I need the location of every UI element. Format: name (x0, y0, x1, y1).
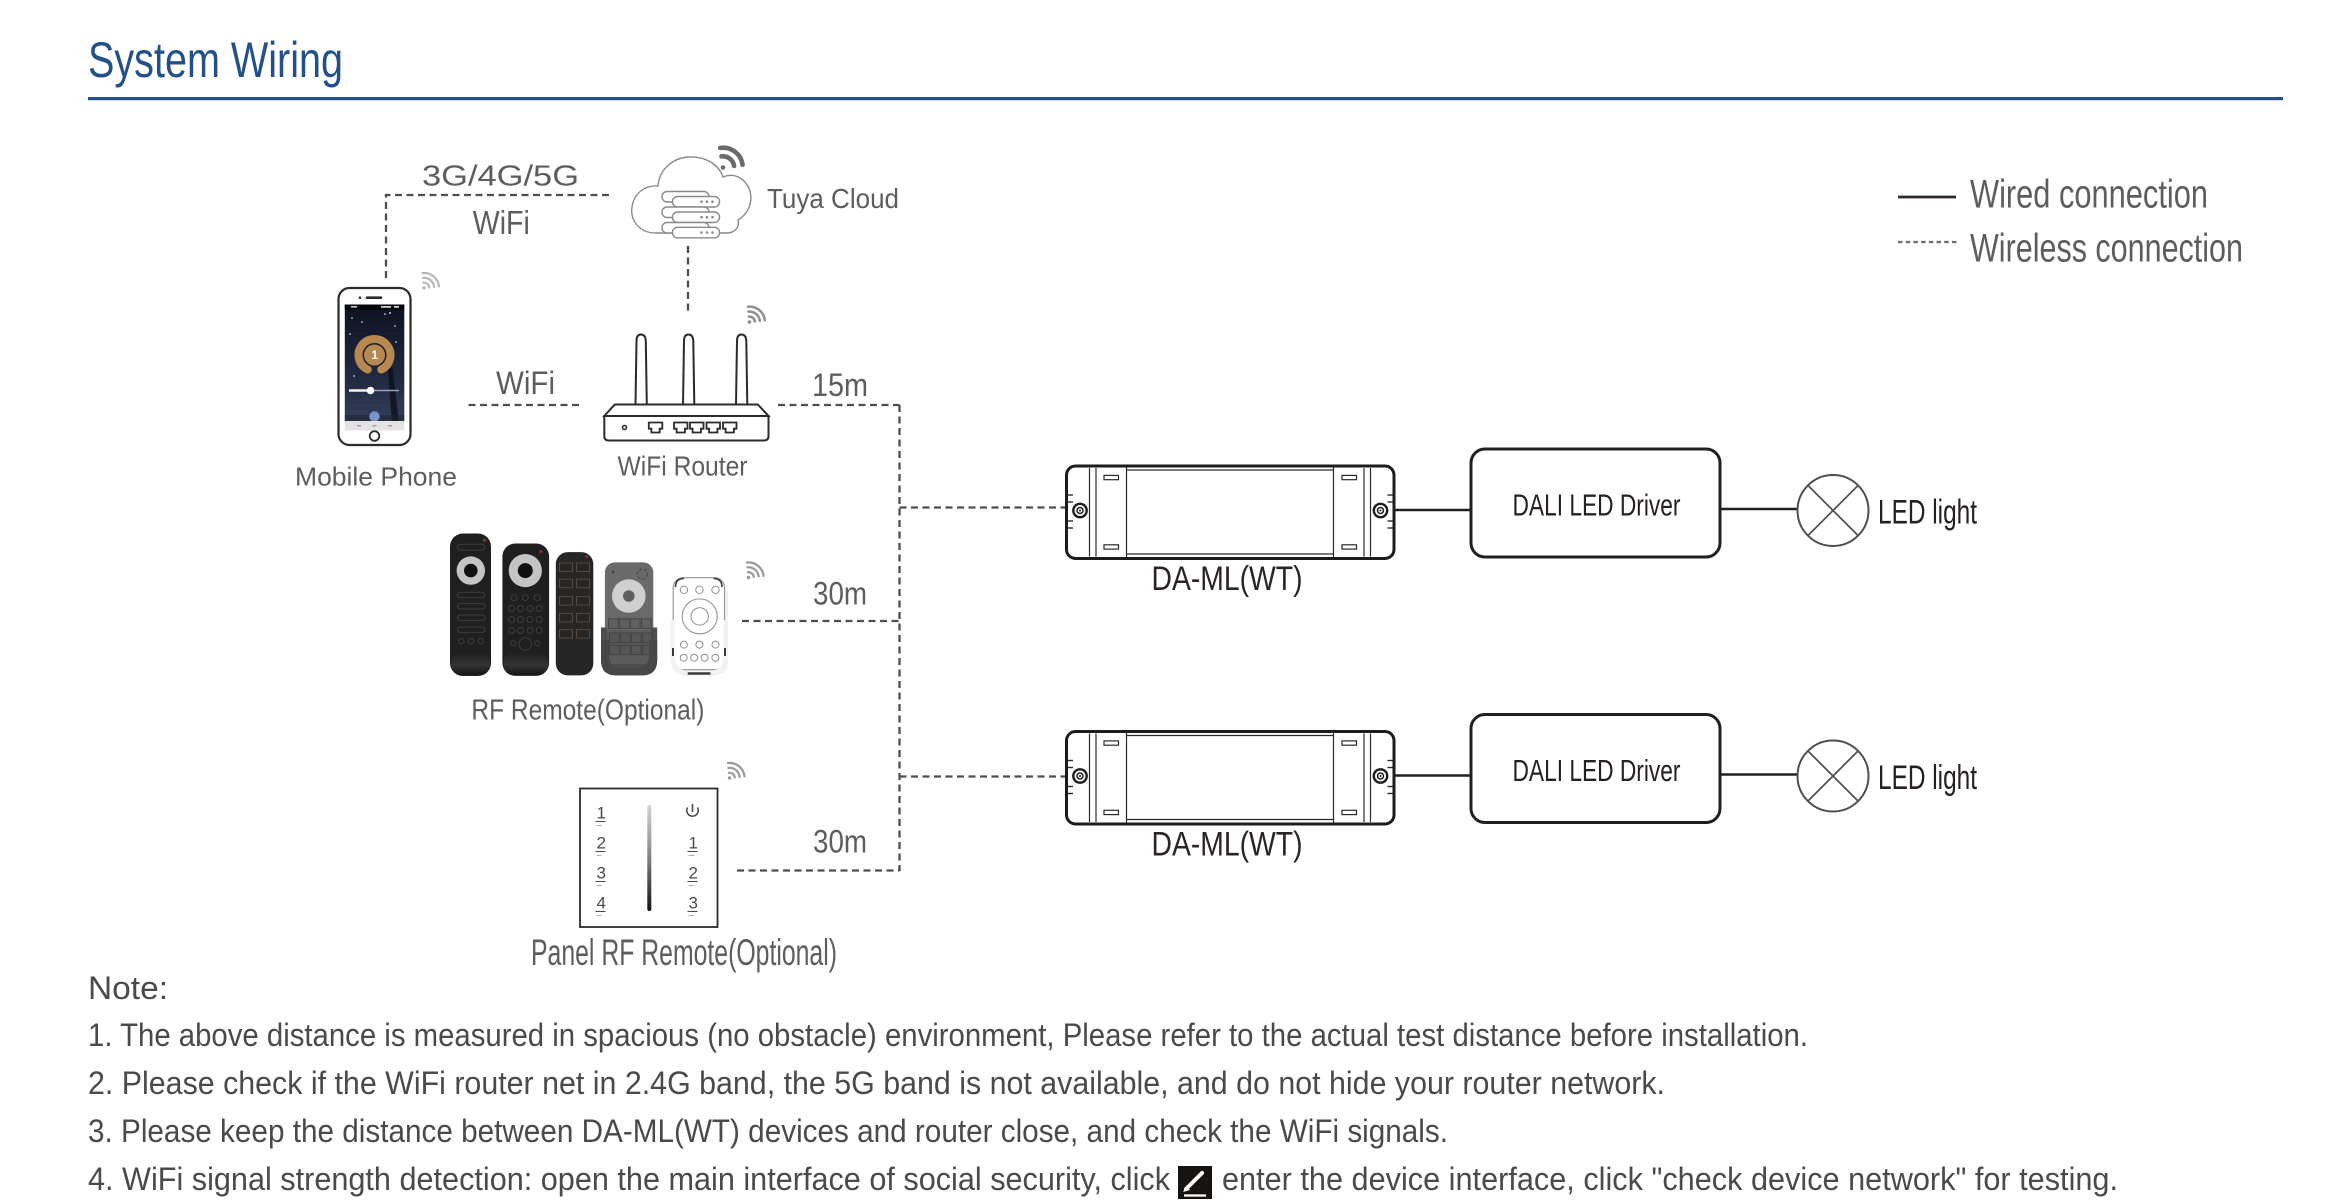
svg-text:30m: 30m (813, 576, 867, 612)
svg-text:1. The above distance is measu: 1. The above distance is measured in spa… (88, 1017, 1808, 1053)
svg-text:Mobile Phone: Mobile Phone (295, 462, 457, 492)
svg-text:2: 2 (689, 864, 698, 883)
svg-text:1: 1 (597, 804, 606, 823)
svg-text:WiFi: WiFi (496, 365, 555, 401)
svg-text:Note:: Note: (88, 970, 168, 1006)
svg-text:DA-ML(WT): DA-ML(WT) (1152, 560, 1303, 598)
svg-text:3: 3 (597, 864, 606, 883)
svg-text:30m: 30m (813, 824, 867, 860)
svg-text:DALI LED Driver: DALI LED Driver (1513, 753, 1681, 788)
svg-text:WiFi Router: WiFi Router (618, 451, 748, 482)
svg-text:3. Please keep the distance b: 3. Please keep the distance between DA-M… (88, 1113, 1448, 1149)
svg-text:LED light: LED light (1878, 759, 1977, 797)
svg-text:Wireless connection: Wireless connection (1970, 227, 2243, 271)
svg-text:Tuya Cloud: Tuya Cloud (767, 183, 899, 214)
svg-text:Panel RF Remote(Optional): Panel RF Remote(Optional) (531, 932, 837, 973)
svg-text:Wired connection: Wired connection (1970, 173, 2208, 217)
svg-text:LED light: LED light (1878, 494, 1977, 532)
svg-text:DA-ML(WT): DA-ML(WT) (1152, 826, 1303, 864)
svg-text:2. Please check if the WiFi ro: 2. Please check if the WiFi router net i… (88, 1065, 1665, 1101)
svg-text:RF Remote(Optional): RF Remote(Optional) (471, 695, 704, 727)
svg-text:15m: 15m (812, 367, 868, 403)
svg-text:DALI LED Driver: DALI LED Driver (1513, 488, 1681, 523)
svg-text:enter the device interface, c: enter the device interface, click "check… (1222, 1161, 2118, 1197)
svg-text:1: 1 (372, 350, 379, 362)
svg-text:4: 4 (597, 894, 606, 913)
svg-text:1: 1 (689, 834, 698, 853)
svg-text:2: 2 (597, 834, 606, 853)
svg-text:3G/4G/5G: 3G/4G/5G (422, 161, 579, 193)
svg-text:WiFi: WiFi (473, 204, 530, 241)
svg-text:System Wiring: System Wiring (88, 32, 343, 88)
svg-text:4. WiFi signal strength detect: 4. WiFi signal strength detection: open … (88, 1161, 1171, 1197)
svg-text:3: 3 (689, 894, 698, 913)
